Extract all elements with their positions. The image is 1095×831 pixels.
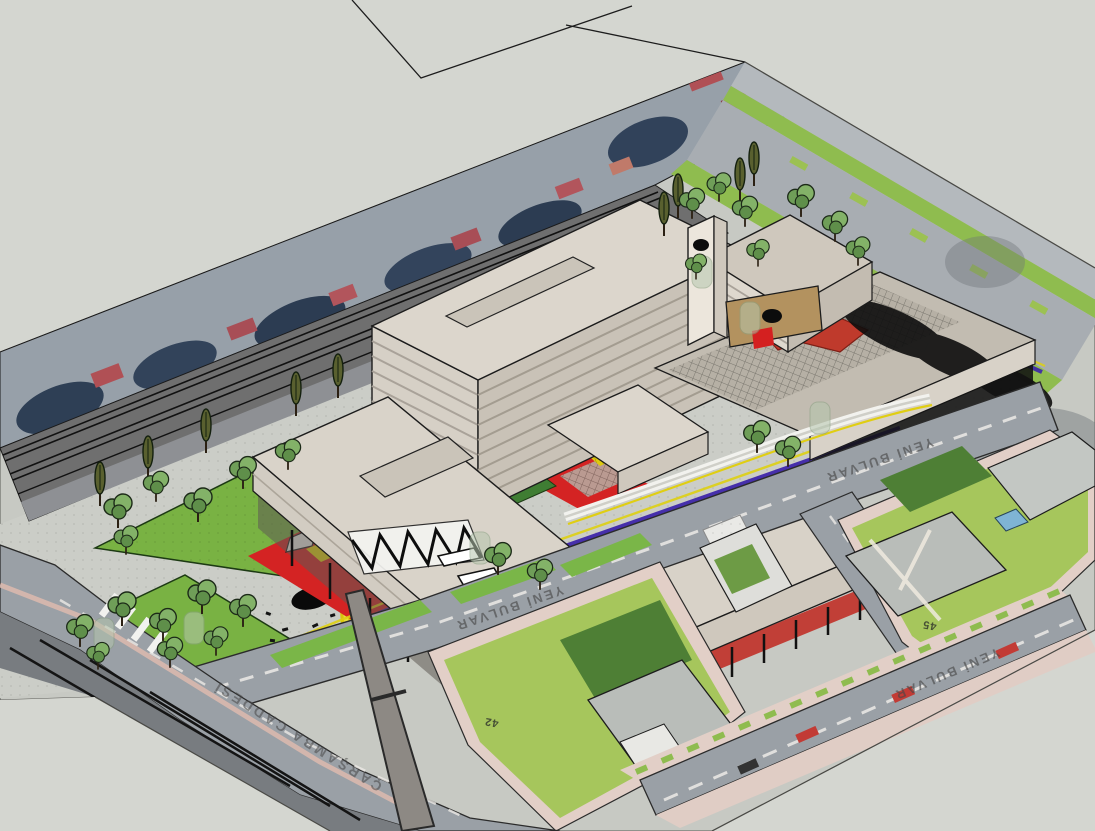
parcel-number: 45 <box>921 618 937 632</box>
site-model-canvas: YENİ BULVAR YENİ BULVAR 42 45 <box>0 0 1095 831</box>
campanile-clock <box>693 239 709 251</box>
3d-model-viewport[interactable]: YENİ BULVAR YENİ BULVAR 42 45 <box>0 0 1095 831</box>
parcel-number: 42 <box>483 715 499 729</box>
